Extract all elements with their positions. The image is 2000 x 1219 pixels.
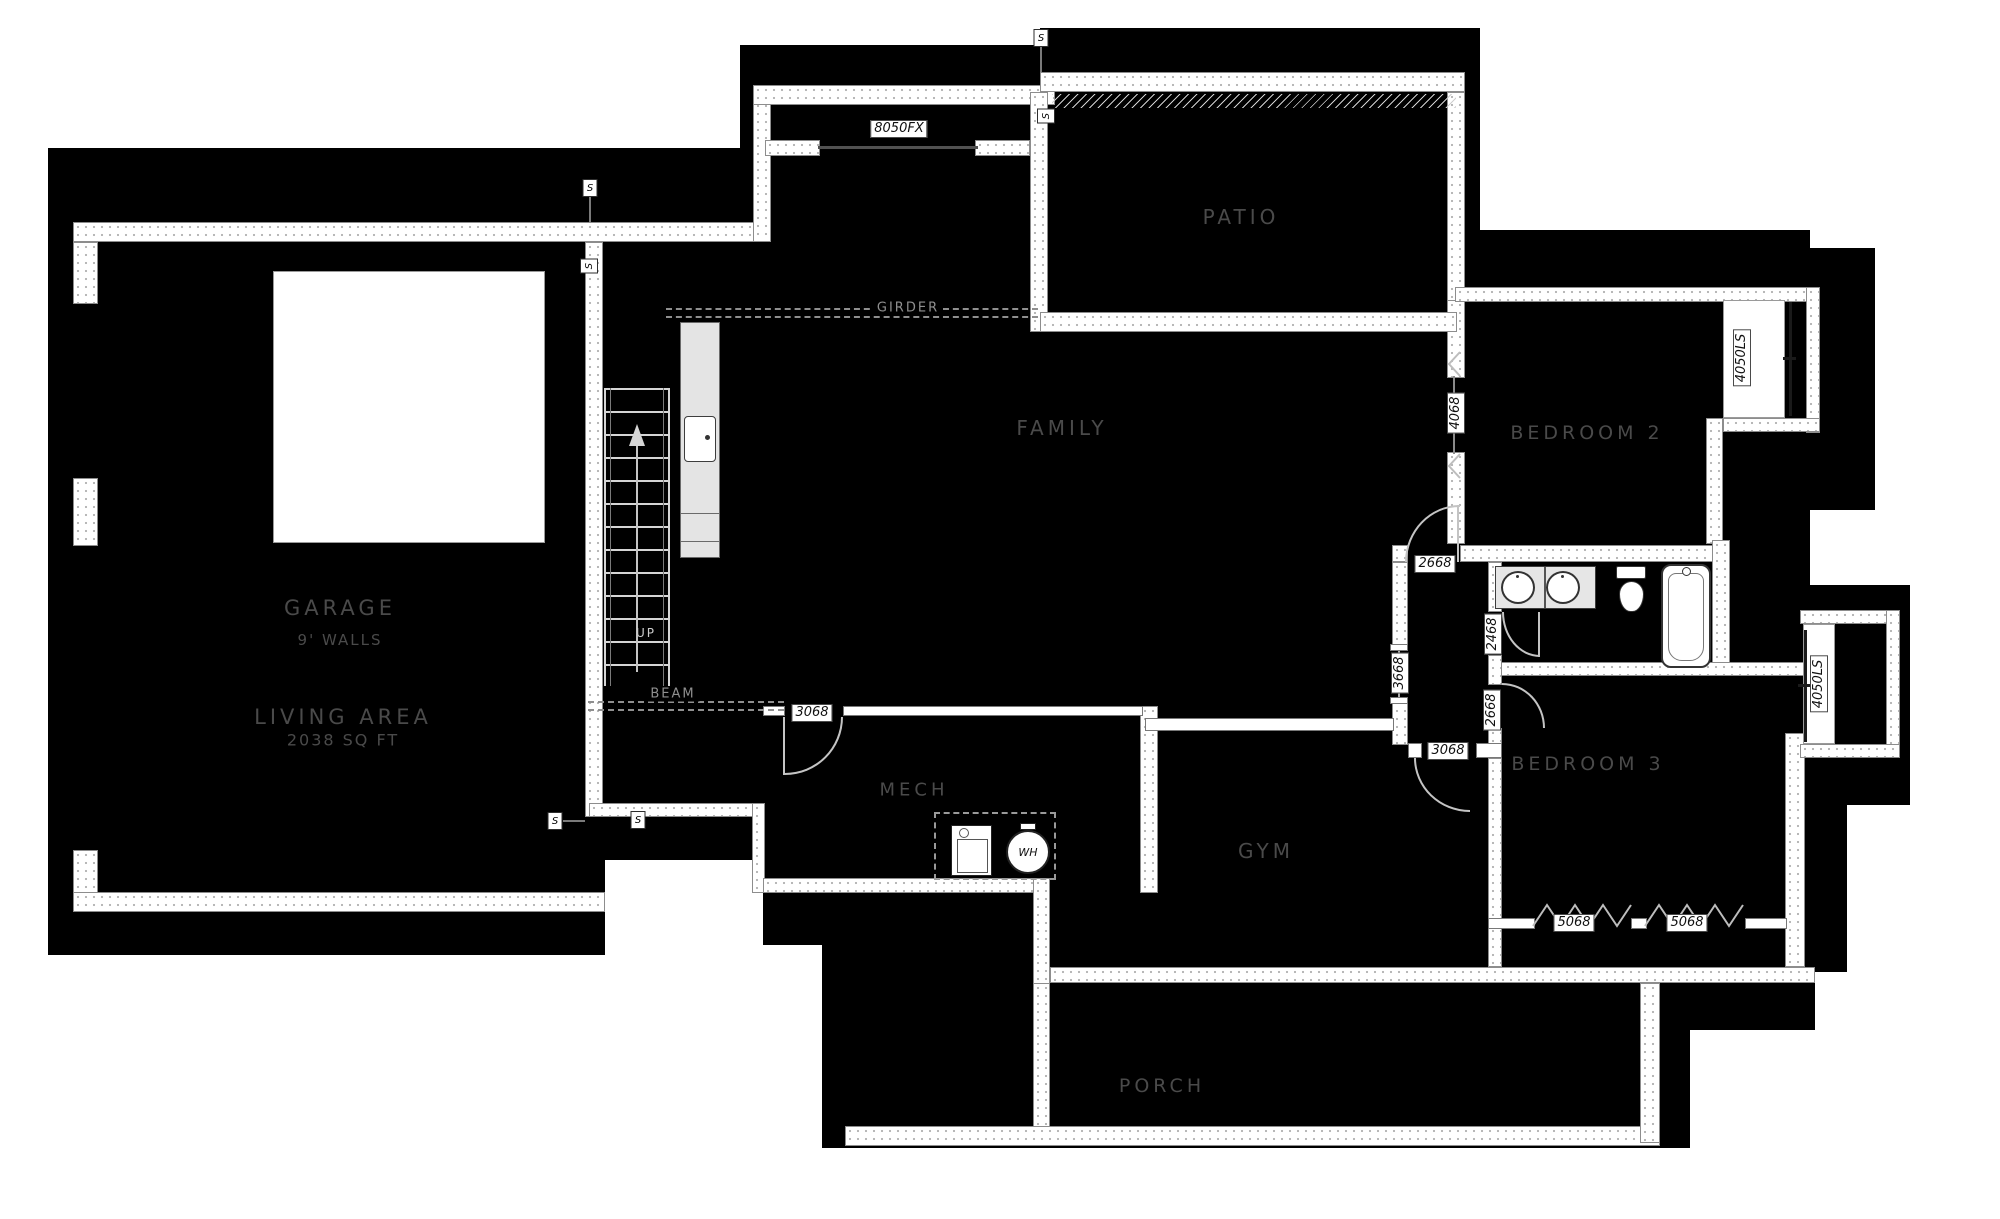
wall xyxy=(1488,655,1502,685)
counter-divider xyxy=(681,513,719,514)
girder-line xyxy=(666,308,1038,310)
switch-label: S xyxy=(1038,33,1044,44)
switch-leader xyxy=(1040,46,1042,72)
switch-symbol: S xyxy=(548,812,563,830)
girder-label: GIRDER xyxy=(873,301,943,316)
wall xyxy=(1488,918,1535,929)
wall xyxy=(1040,72,1465,92)
switch-label: S xyxy=(1041,113,1052,119)
room-label-mech: MECH xyxy=(879,780,948,801)
wall xyxy=(1033,878,1050,985)
door-leaf xyxy=(1538,612,1540,657)
door-label-2668-bedroom3: 2668 xyxy=(1483,689,1501,730)
washer-knob-icon xyxy=(959,828,969,838)
wall xyxy=(753,85,1055,105)
wall xyxy=(1495,662,1805,676)
switch-label: S xyxy=(584,263,595,269)
stairs-up-label: UP xyxy=(632,626,660,640)
wall xyxy=(845,1126,1660,1146)
switch-symbol: S xyxy=(580,259,598,274)
stair-up-arrow-icon xyxy=(629,424,645,446)
garage-slab xyxy=(273,271,545,543)
bathtub-inner xyxy=(1668,573,1704,661)
wall xyxy=(1723,418,1820,432)
window-label-4050ls-bedroom3: 4050LS xyxy=(1810,656,1828,713)
stair-rail xyxy=(663,388,664,686)
sink-right xyxy=(1546,571,1580,604)
window-cap xyxy=(1390,697,1408,704)
room-label-patio: PATIO xyxy=(1203,205,1280,229)
wall xyxy=(1460,545,1730,562)
window-label-4068: 4068 xyxy=(1447,392,1465,433)
wall xyxy=(1140,706,1158,893)
stair-rail xyxy=(610,388,611,686)
wall xyxy=(753,85,771,242)
girder-line xyxy=(666,316,1038,318)
wall xyxy=(1640,983,1660,1143)
switch-label: S xyxy=(587,183,593,194)
switch-symbol: S xyxy=(631,811,646,829)
door-label-3068-mech: 3068 xyxy=(791,704,832,722)
window-label-3668: 3668 xyxy=(1391,652,1409,693)
switch-label: S xyxy=(635,815,641,826)
wall xyxy=(1476,743,1502,758)
beam-label: BEAM xyxy=(646,687,699,702)
room-label-garage: GARAGE xyxy=(284,596,396,620)
switch-symbol: S xyxy=(583,179,598,197)
window-label-4050ls-bedroom2: 4050LS xyxy=(1733,330,1751,387)
wall xyxy=(1745,918,1787,929)
wall xyxy=(73,892,605,912)
washer xyxy=(951,825,992,876)
faucet-icon xyxy=(1561,575,1564,578)
wall xyxy=(763,706,785,716)
water-heater: WH xyxy=(1006,830,1050,874)
wall xyxy=(1706,418,1723,544)
room-label-family: FAMILY xyxy=(1016,416,1107,440)
wall xyxy=(1712,540,1730,675)
wall-window-stub xyxy=(765,140,820,156)
wall xyxy=(843,706,1143,716)
wall xyxy=(589,803,763,817)
window-glass-line xyxy=(818,146,978,149)
wall xyxy=(763,878,1037,893)
window-label-5068-b: 5068 xyxy=(1666,914,1707,932)
sink-left xyxy=(1501,571,1535,604)
room-sublabel-living-area: 2038 SQ FT xyxy=(287,731,399,750)
wall xyxy=(1050,967,1815,983)
wall-window-stub xyxy=(975,140,1030,156)
window-label-8050fx: 8050FX xyxy=(870,120,927,138)
door-label-2468-bath: 2468 xyxy=(1484,613,1502,654)
wall xyxy=(1886,610,1900,758)
door-label-2668-hall: 2668 xyxy=(1414,555,1455,573)
window-cap xyxy=(1390,644,1408,651)
wall xyxy=(1800,744,1900,758)
wall xyxy=(1030,92,1048,332)
door-label-3068-gym: 3068 xyxy=(1427,742,1468,760)
switch-leader xyxy=(589,196,591,222)
switch-symbol: S xyxy=(1034,29,1049,47)
wall xyxy=(1806,287,1820,433)
washer-door xyxy=(957,839,988,873)
wall xyxy=(585,242,603,817)
beam-line xyxy=(588,709,784,711)
faucet-icon xyxy=(1516,575,1519,578)
wall xyxy=(1040,312,1457,332)
toilet-tank xyxy=(1616,566,1646,579)
door-leaf xyxy=(1457,505,1459,562)
wall xyxy=(1392,562,1408,650)
patio-hatch xyxy=(1052,94,1456,108)
switch-leader xyxy=(563,820,585,822)
room-label-bedroom2: BEDROOM 2 xyxy=(1510,422,1663,444)
faucet-icon xyxy=(705,435,710,440)
switch-label: S xyxy=(552,816,558,827)
room-label-gym: GYM xyxy=(1238,839,1294,863)
room-label-bedroom3: BEDROOM 3 xyxy=(1511,753,1664,775)
wall xyxy=(1145,718,1394,731)
switch-symbol: S xyxy=(1037,109,1055,124)
wall xyxy=(1408,743,1422,758)
window-break-symbol xyxy=(1445,350,1463,378)
wall xyxy=(73,222,771,242)
faucet-icon xyxy=(1682,567,1691,576)
floor-plan: WH S S S S S S GARAGE 9' WALLS LIVING AR… xyxy=(0,0,2000,1219)
wall xyxy=(1800,610,1900,624)
wall xyxy=(1033,983,1050,1143)
window-label-5068-a: 5068 xyxy=(1553,914,1594,932)
window-tick xyxy=(1783,357,1796,360)
room-sublabel-garage: 9' WALLS xyxy=(298,631,383,649)
window-break-symbol xyxy=(1445,452,1463,480)
water-heater-stub xyxy=(1020,823,1036,830)
wall xyxy=(1785,733,1805,967)
water-heater-label: WH xyxy=(1018,846,1037,859)
wall xyxy=(1447,92,1465,312)
bar-sink xyxy=(684,416,716,462)
wall xyxy=(1392,698,1408,745)
room-label-living-area: LIVING AREA xyxy=(254,705,432,729)
wall xyxy=(73,478,98,546)
floor-area-garage xyxy=(48,148,605,955)
wall xyxy=(1488,758,1502,967)
counter-divider xyxy=(681,541,719,542)
bathtub xyxy=(1661,564,1711,668)
room-label-porch: PORCH xyxy=(1119,1075,1205,1097)
wall xyxy=(73,242,98,304)
door-leaf xyxy=(783,717,785,775)
